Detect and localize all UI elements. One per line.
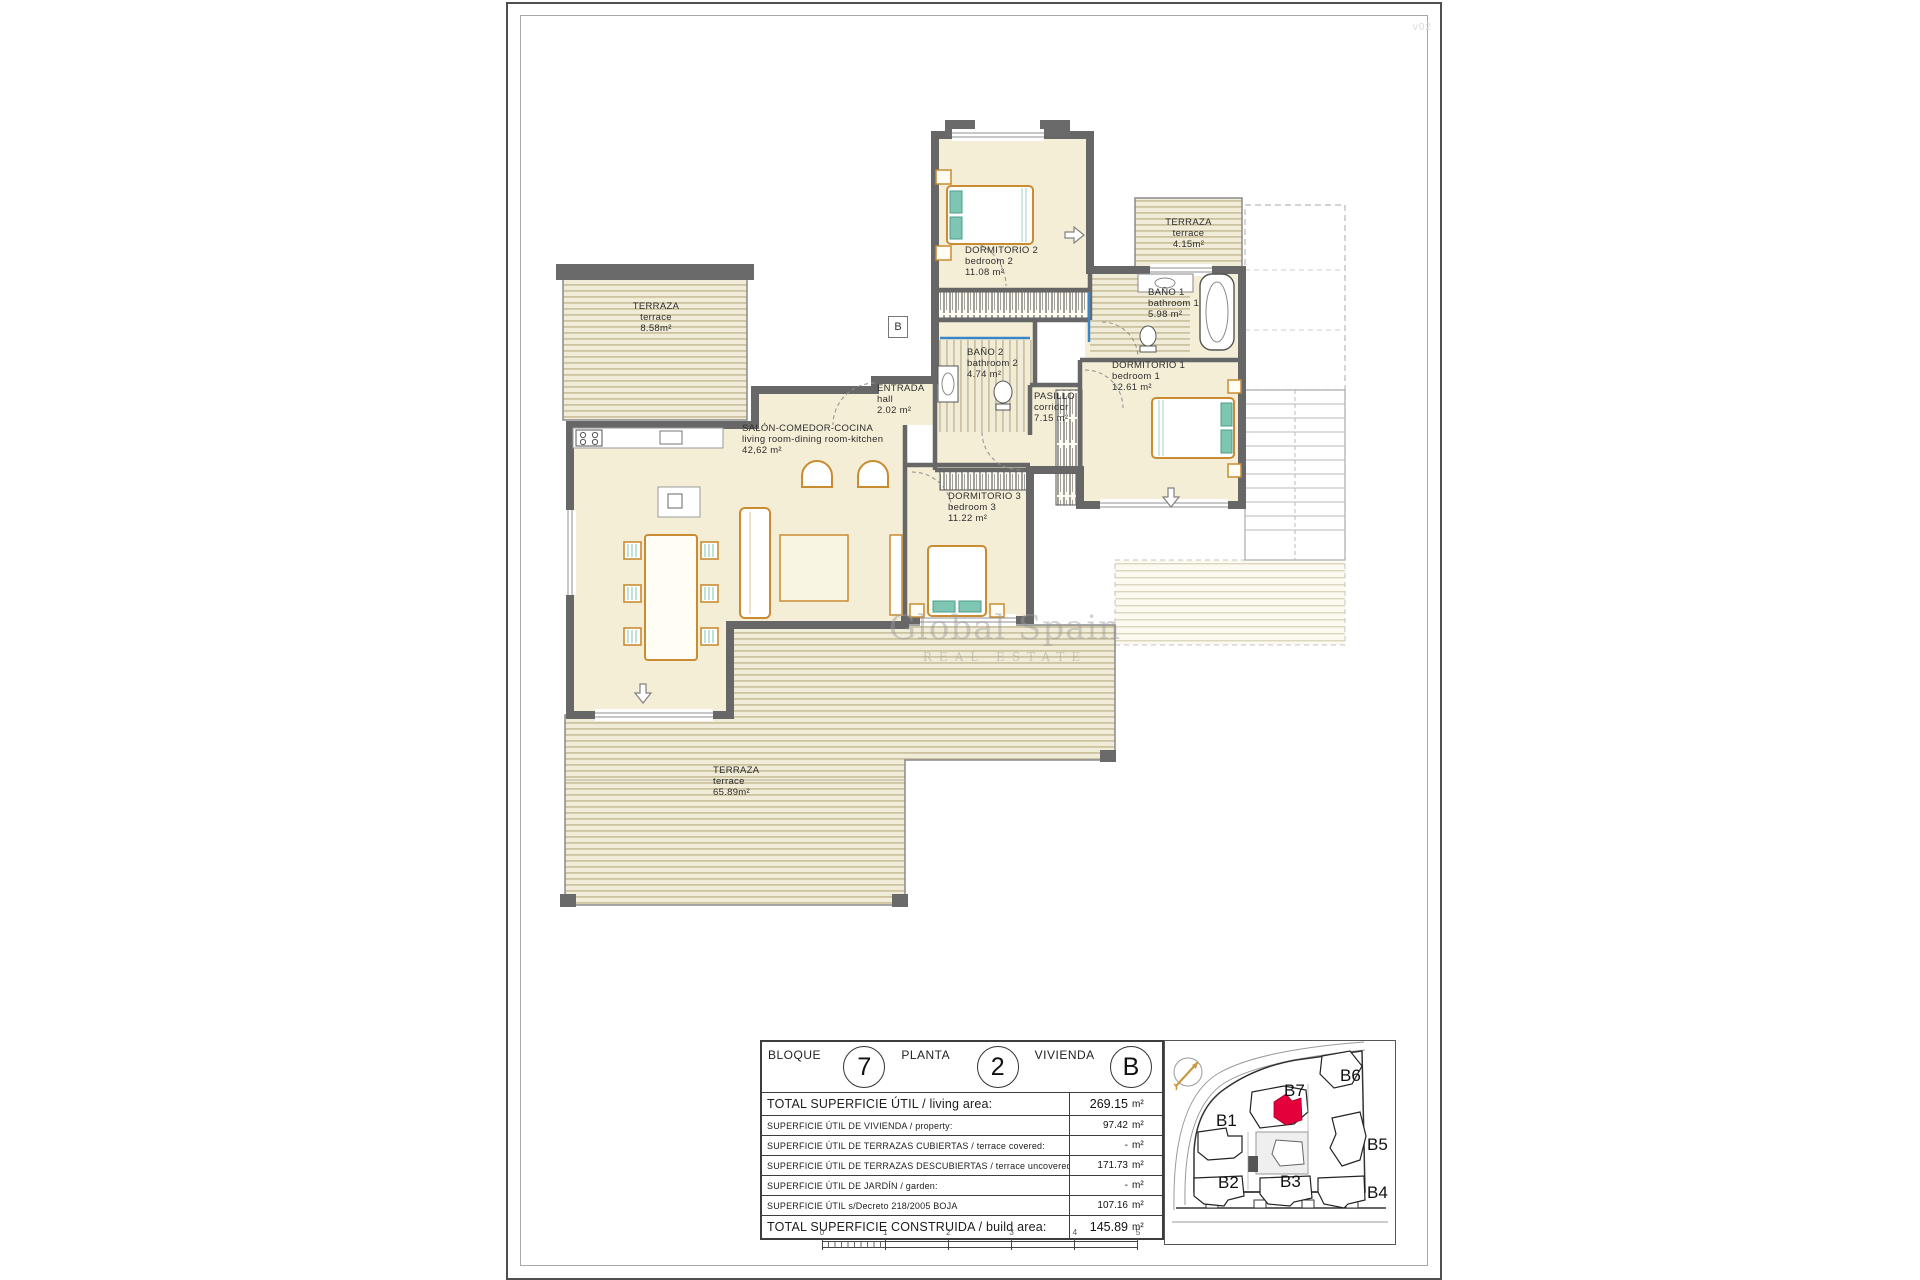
closet-dorm3 <box>940 470 1028 490</box>
stairs <box>1245 390 1345 560</box>
unit-marker: B <box>888 316 908 338</box>
table-row: SUPERFICIE ÚTIL DE JARDÍN / garden: - m² <box>762 1176 1162 1196</box>
surface-info-table: BLOQUE 7 PLANTA 2 VIVIENDA B TOTAL SUPER… <box>760 1040 1164 1240</box>
label-entrada: ENTRADA hall 2.02 m² <box>877 384 925 417</box>
svg-text:B3: B3 <box>1280 1172 1301 1191</box>
svg-text:B2: B2 <box>1218 1173 1239 1192</box>
bloque-cell: BLOQUE 7 <box>762 1042 895 1092</box>
vivienda-label: VIVIENDA <box>1035 1048 1095 1062</box>
label-pasillo: PASILLO corridor 7.15 m² <box>1034 392 1075 425</box>
vivienda-value-badge: B <box>1110 1046 1152 1088</box>
site-map-drawing: B1 B2 B3 B4 B5 B6 B7 <box>1164 1040 1396 1245</box>
svg-text:B4: B4 <box>1367 1183 1388 1202</box>
bloque-label: BLOQUE <box>768 1048 821 1062</box>
svg-text:B1: B1 <box>1216 1111 1237 1130</box>
table-row: SUPERFICIE ÚTIL DE TERRAZAS CUBIERTAS / … <box>762 1136 1162 1156</box>
version-note: v02 <box>1413 22 1432 33</box>
page-canvas: { "page": { "corner_note": "v02" }, "wat… <box>0 0 1920 1280</box>
vivienda-cell: VIVIENDA B <box>1029 1042 1162 1092</box>
label-dorm1: DORMITORIO 1 bedroom 1 12.61 m² <box>1112 361 1185 394</box>
label-terraza-top: TERRAZA terrace 4.15m² <box>1137 218 1240 251</box>
dining-set <box>624 535 718 660</box>
label-dorm2: DORMITORIO 2 bedroom 2 11.08 m² <box>965 246 1038 279</box>
table-row: SUPERFICIE ÚTIL DE TERRAZAS DESCUBIERTAS… <box>762 1156 1162 1176</box>
floor-plan: TERRAZA terrace 8.58m² DORMITORIO 2 bedr… <box>540 80 1380 940</box>
planta-value-badge: 2 <box>977 1046 1019 1088</box>
table-row: SUPERFICIE ÚTIL s/Decreto 218/2005 BOJA … <box>762 1196 1162 1216</box>
label-terraza-left: TERRAZA terrace 8.58m² <box>600 302 712 335</box>
table-row: TOTAL SUPERFICIE ÚTIL / living area: 269… <box>762 1093 1162 1116</box>
scale-bar-ruler <box>822 1238 1138 1250</box>
info-table-header: BLOQUE 7 PLANTA 2 VIVIENDA B <box>762 1042 1162 1093</box>
planta-cell: PLANTA 2 <box>895 1042 1028 1092</box>
planta-label: PLANTA <box>901 1048 950 1062</box>
scale-bar-numbers: 0 1 2 3 4 5 <box>822 1228 1138 1237</box>
terrace-left <box>556 264 754 420</box>
label-bano2: BAÑO 2 bathroom 2 4.74 m² <box>967 348 1018 381</box>
bloque-value-badge: 7 <box>843 1046 885 1088</box>
label-dorm3: DORMITORIO 3 bedroom 3 11.22 m² <box>948 492 1021 525</box>
label-salon: SALÓN-COMEDOR-COCINA living room-dining … <box>742 424 883 457</box>
label-bano1: BAÑO 1 bathroom 1 5.98 m² <box>1148 288 1199 321</box>
svg-text:B5: B5 <box>1367 1135 1388 1154</box>
svg-text:B7: B7 <box>1284 1081 1305 1100</box>
label-terraza-main: TERRAZA terrace 65.89m² <box>713 766 759 799</box>
svg-text:B6: B6 <box>1340 1066 1361 1085</box>
table-row: SUPERFICIE ÚTIL DE VIVIENDA / property: … <box>762 1116 1162 1136</box>
closet-dorm2 <box>937 292 1088 318</box>
site-map: B1 B2 B3 B4 B5 B6 B7 <box>1164 1040 1396 1245</box>
scale-bar: 0 1 2 3 4 5 <box>822 1228 1138 1250</box>
